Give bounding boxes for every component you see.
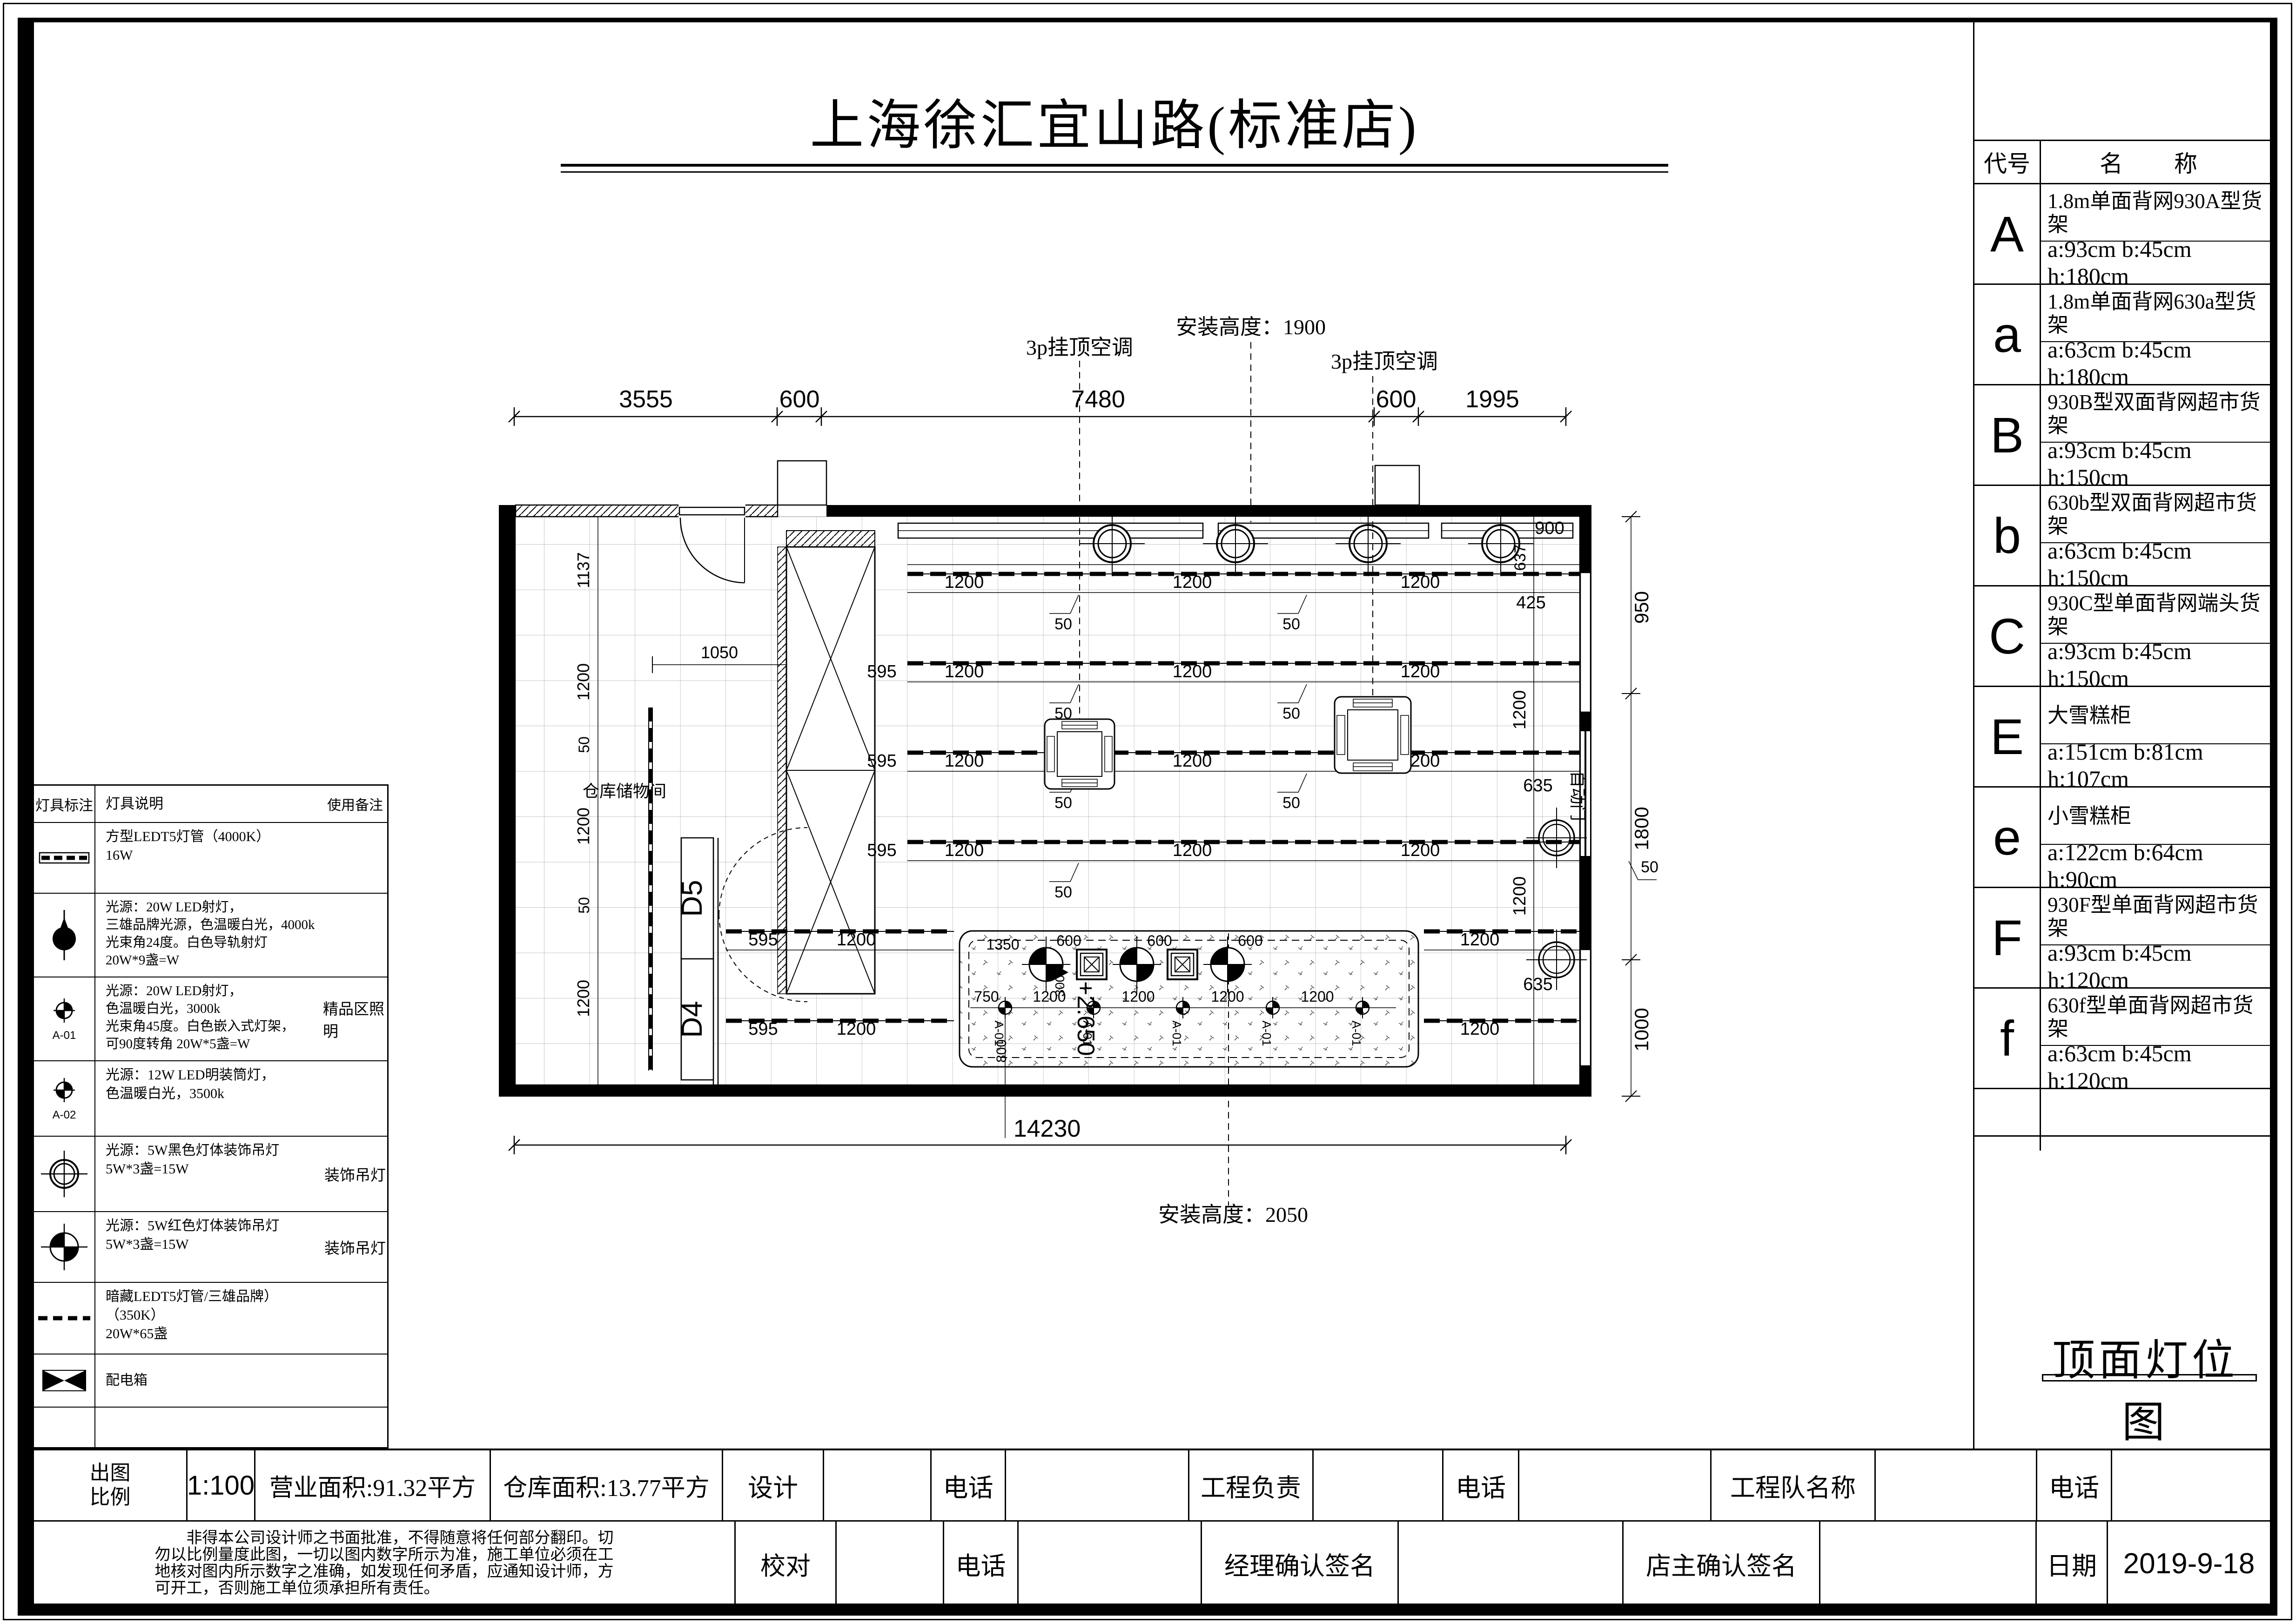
- border-top: [18, 18, 2277, 22]
- border-left: [18, 18, 34, 1616]
- legend-header: 灯具标注 灯具说明 使用备注: [34, 786, 387, 823]
- ac-cassette-left: [1045, 719, 1114, 789]
- shelf-legend-table: 代号 名 称 A 1.8m单面背网930A型货架 a:93cm b:45cm h…: [1973, 140, 2270, 1137]
- row-name: 930B型双面背网超市货架: [2041, 385, 2270, 443]
- svg-text:425: 425: [1516, 593, 1545, 613]
- row-name: 930C型单面背网端头货架: [2041, 586, 2270, 644]
- row-code: A: [1974, 184, 2041, 283]
- svg-text:1200: 1200: [1173, 751, 1212, 771]
- legend-row: A-01 光源：20W LED射灯， 色温暖白光，3000k 光束角45度。白色…: [34, 977, 387, 1061]
- page-title: 上海徐汇宜山路(标准店): [561, 81, 1668, 158]
- border-right: [2270, 18, 2277, 1616]
- svg-text:1200: 1200: [1173, 662, 1212, 681]
- svg-text:635: 635: [1523, 776, 1552, 795]
- dim-top: 3555 600 7480 600 1995: [509, 386, 1571, 426]
- check-value: [837, 1522, 944, 1605]
- svg-text:50: 50: [1282, 615, 1300, 633]
- header-name: 名 称: [2041, 141, 2270, 183]
- svg-text:635: 635: [1523, 975, 1552, 994]
- row-dims: a:93cm b:45cm h:150cm: [2041, 644, 2270, 686]
- ac-label-left: 3p挂顶空调: [1026, 336, 1133, 359]
- svg-text:A-01: A-01: [1170, 1021, 1184, 1046]
- legend-header-mark: 灯具标注: [34, 786, 95, 822]
- legend-desc: 配电箱: [95, 1354, 323, 1407]
- shelf-table-header: 代号 名 称: [1974, 141, 2270, 184]
- svg-text:595: 595: [748, 1019, 778, 1039]
- row-dims: a:93cm b:45cm h:150cm: [2041, 443, 2270, 485]
- svg-text:50: 50: [1054, 615, 1072, 633]
- row-dims: a:63cm b:45cm h:150cm: [2041, 543, 2270, 585]
- pendant-red-icon: [34, 1212, 95, 1282]
- row-code: E: [1974, 687, 2041, 786]
- warehouse-area: 仓库面积:13.77平方: [491, 1450, 723, 1520]
- legend-row-empty: [34, 1408, 387, 1447]
- legend-desc: 光源：20W LED射灯， 三雄品牌光源，色温暖白光，4000k 光束角24度。…: [95, 894, 323, 977]
- svg-text:1200: 1200: [945, 573, 984, 592]
- svg-text:600: 600: [779, 386, 820, 413]
- svg-text:50: 50: [1282, 705, 1300, 722]
- concealed-tube-icon: [34, 1283, 95, 1354]
- legend-row: A-02 光源：12W LED明装筒灯， 色温暖白光，3500k: [34, 1061, 387, 1137]
- svg-text:1200: 1200: [574, 980, 593, 1017]
- svg-text:595: 595: [867, 841, 896, 860]
- svg-text:1200: 1200: [1033, 988, 1066, 1005]
- manager-sign-label: 经理确认签名: [1202, 1522, 1399, 1605]
- row-code: e: [1974, 788, 2041, 887]
- door-label-d4: D4: [676, 1001, 708, 1038]
- row-name: 930F型单面背网超市货架: [2041, 888, 2270, 945]
- design-value: [824, 1450, 932, 1520]
- row-dims: a:93cm b:45cm h:180cm: [2041, 242, 2270, 283]
- date-label: 日期: [2037, 1522, 2108, 1605]
- svg-text:1200: 1200: [1173, 573, 1212, 592]
- project-lead-label: 工程负责: [1189, 1450, 1314, 1520]
- svg-text:950: 950: [1631, 591, 1652, 624]
- row-code: f: [1974, 989, 2041, 1088]
- svg-text:1200: 1200: [1121, 988, 1155, 1005]
- svg-text:600: 600: [1147, 932, 1172, 949]
- auto-door-label: 自动门: [1568, 771, 1587, 821]
- install-height-top: 安装高度：1900: [1176, 315, 1326, 339]
- svg-text:1200: 1200: [945, 841, 984, 860]
- team-name-value: [1876, 1450, 2037, 1520]
- track-spotlight-icon: [34, 894, 95, 977]
- date-value: 2019-9-18: [2108, 1522, 2270, 1605]
- row-name: 1.8m单面背网630a型货架: [2041, 285, 2270, 342]
- install-height-bottom: 安装高度：2050: [1158, 1203, 1308, 1226]
- svg-text:1200: 1200: [1510, 690, 1530, 730]
- svg-text:1200: 1200: [1460, 930, 1500, 950]
- svg-text:750: 750: [974, 988, 999, 1005]
- team-name-label: 工程队名称: [1712, 1450, 1876, 1520]
- legend-remark: [323, 1354, 387, 1407]
- row-dims: a:63cm b:45cm h:180cm: [2041, 342, 2270, 384]
- svg-text:1200: 1200: [574, 808, 593, 845]
- symbol-tag: A-01: [53, 1029, 76, 1042]
- table-row: a 1.8m单面背网630a型货架 a:63cm b:45cm h:180cm: [1974, 285, 2270, 385]
- header-code: 代号: [1974, 141, 2041, 183]
- row-name: 小雪糕柜: [2041, 788, 2270, 845]
- svg-text:1200: 1200: [945, 662, 984, 681]
- svg-text:600: 600: [1376, 386, 1417, 413]
- level-label: +2.650: [1072, 981, 1099, 1056]
- title-block: 出图 比例 1:100 营业面积:91.32平方 仓库面积:13.77平方 设计…: [34, 1449, 2270, 1604]
- svg-text:1137: 1137: [574, 552, 593, 588]
- svg-text:1200: 1200: [945, 751, 984, 771]
- legend-remark: [323, 1061, 387, 1136]
- legend-row: 光源：5W黑色灯体装饰吊灯 5W*3盏=15W 装饰吊灯: [34, 1137, 387, 1212]
- row-name: 1.8m单面背网930A型货架: [2041, 184, 2270, 242]
- legend-remark: [323, 1283, 387, 1354]
- title-block-row-2: 非得本公司设计师之书面批准，不得随意将任何部分翻印。切 勿以比例量度此图，一切以…: [34, 1522, 2270, 1605]
- svg-text:1800: 1800: [1631, 807, 1652, 850]
- row-name: 大雪糕柜: [2041, 687, 2270, 744]
- recessed-square-fixture: [1077, 950, 1107, 979]
- svg-text:14230: 14230: [1014, 1115, 1081, 1142]
- legend-row: 配电箱: [34, 1354, 387, 1408]
- svg-text:A-01: A-01: [1260, 1021, 1274, 1046]
- table-row: C 930C型单面背网端头货架 a:93cm b:45cm h:150cm: [1974, 586, 2270, 687]
- legend-remark: 装饰吊灯: [323, 1137, 387, 1211]
- svg-text:595: 595: [867, 751, 896, 771]
- svg-text:7480: 7480: [1071, 386, 1125, 413]
- phone-label: 电话: [944, 1522, 1019, 1605]
- svg-text:600: 600: [1056, 932, 1081, 949]
- legend-row: 光源：5W红色灯体装饰吊灯 5W*3盏=15W 装饰吊灯: [34, 1212, 387, 1283]
- svg-text:1200: 1200: [1510, 876, 1530, 916]
- row-code: a: [1974, 285, 2041, 384]
- title-underline-2: [561, 171, 1668, 173]
- svg-text:50: 50: [576, 897, 592, 914]
- svg-text:1200: 1200: [574, 663, 593, 701]
- table-row: E 大雪糕柜 a:151cm b:81cm h:107cm: [1974, 687, 2270, 788]
- row-dims: a:151cm b:81cm h:107cm: [2041, 744, 2270, 786]
- svg-text:1350: 1350: [986, 936, 1019, 953]
- svg-text:1200: 1200: [1401, 573, 1440, 592]
- table-row: F 930F型单面背网超市货架 a:93cm b:45cm h:120cm: [1974, 888, 2270, 989]
- distribution-box-icon: [34, 1354, 95, 1407]
- svg-text:1200: 1200: [1401, 662, 1440, 681]
- door-label-d5: D5: [676, 880, 708, 916]
- legend-row: 暗藏LEDT5灯管/三雄品牌）（350K） 20W*65盏: [34, 1283, 387, 1354]
- drawing-name: 顶面灯位图: [2034, 1326, 2257, 1449]
- phone-value: [2112, 1450, 2270, 1520]
- dim-bottom: 14230 安装高度：2050: [509, 1115, 1571, 1226]
- storage-label: 仓库储物间: [583, 782, 666, 801]
- svg-text:1000: 1000: [1631, 1008, 1652, 1051]
- project-lead-value: [1314, 1450, 1443, 1520]
- row-code: B: [1974, 385, 2041, 485]
- svg-text:1200: 1200: [1211, 988, 1244, 1005]
- phone-label: 电话: [2037, 1450, 2112, 1520]
- svg-text:1200: 1200: [837, 930, 876, 950]
- legend-header-remark: 使用备注: [323, 786, 387, 822]
- phone-label: 电话: [1443, 1450, 1519, 1520]
- legend-remark: [323, 894, 387, 977]
- row-name: 630b型双面背网超市货架: [2041, 486, 2270, 543]
- row-code: b: [1974, 486, 2041, 585]
- svg-text:1050: 1050: [701, 643, 738, 662]
- row-dims: a:93cm b:45cm h:120cm: [2041, 945, 2270, 987]
- ac-label-right: 3p挂顶空调: [1331, 350, 1438, 373]
- svg-text:900: 900: [1535, 519, 1564, 538]
- scale-label: 出图 比例: [34, 1450, 188, 1520]
- dim-right-exterior: 950 1800 1000: [1622, 511, 1652, 1102]
- svg-text:1200: 1200: [837, 1019, 876, 1039]
- table-row: f 630f型单面背网超市货架 a:63cm b:45cm h:120cm: [1974, 989, 2270, 1089]
- svg-text:50: 50: [576, 736, 592, 753]
- row-code: C: [1974, 586, 2041, 686]
- svg-text:50: 50: [1282, 794, 1300, 812]
- phone-label: 电话: [932, 1450, 1006, 1520]
- led-tube-surface-icon: [34, 823, 95, 893]
- legend-desc: 光源：12W LED明装筒灯， 色温暖白光，3500k: [95, 1061, 323, 1136]
- legend-desc: 光源：5W黑色灯体装饰吊灯 5W*3盏=15W: [95, 1137, 323, 1211]
- table-row: A 1.8m单面背网930A型货架 a:93cm b:45cm h:180cm: [1974, 184, 2270, 285]
- svg-text:595: 595: [748, 930, 778, 950]
- lighting-legend-table: 灯具标注 灯具说明 使用备注 方型LEDT5灯管（4000K） 16W 光源：2…: [34, 784, 389, 1449]
- title-underline: [561, 164, 1668, 167]
- legend-desc: 光源：20W LED射灯， 色温暖白光，3000k 光束角45度。白色嵌入式灯架…: [95, 977, 323, 1060]
- row-code: F: [1974, 888, 2041, 987]
- svg-text:637: 637: [1511, 545, 1529, 571]
- legend-desc: 光源：5W红色灯体装饰吊灯 5W*3盏=15W: [95, 1212, 323, 1282]
- surface-downlight-icon: A-02: [34, 1061, 95, 1136]
- manager-sign-value: [1399, 1522, 1624, 1605]
- svg-text:600: 600: [1238, 932, 1262, 949]
- table-row: b 630b型双面背网超市货架 a:63cm b:45cm h:150cm: [1974, 486, 2270, 586]
- ac-cassette-right: [1335, 697, 1411, 773]
- floor-plan: 仓库储物间 D5 D4: [489, 298, 1699, 1238]
- legend-remark: [323, 823, 387, 893]
- owner-sign-label: 店主确认签名: [1624, 1522, 1820, 1605]
- svg-text:50: 50: [1054, 794, 1072, 812]
- symbol-tag: A-02: [53, 1109, 76, 1122]
- svg-text:1200: 1200: [1173, 841, 1212, 860]
- svg-text:1200: 1200: [1401, 841, 1440, 860]
- svg-text:1200: 1200: [1460, 1019, 1500, 1039]
- phone-value: [1019, 1522, 1202, 1605]
- drawing-name-underline: [2042, 1374, 2257, 1381]
- table-row: e 小雪糕柜 a:122cm b:64cm h:90cm: [1974, 788, 2270, 888]
- owner-sign-value: [1820, 1522, 2037, 1605]
- svg-text:1995: 1995: [1465, 386, 1519, 413]
- legend-row: 方型LEDT5灯管（4000K） 16W: [34, 823, 387, 894]
- row-dims: a:122cm b:64cm h:90cm: [2041, 845, 2270, 887]
- svg-text:1200: 1200: [1301, 988, 1334, 1005]
- title-block-row-1: 出图 比例 1:100 营业面积:91.32平方 仓库面积:13.77平方 设计…: [34, 1450, 2270, 1522]
- business-area: 营业面积:91.32平方: [255, 1450, 491, 1520]
- phone-value: [1519, 1450, 1712, 1520]
- table-row-empty: [1974, 1089, 2270, 1151]
- legend-remark: 装饰吊灯: [323, 1212, 387, 1282]
- check-label: 校对: [736, 1522, 837, 1605]
- svg-text:595: 595: [867, 662, 896, 681]
- top-annotations: 3p挂顶空调 安装高度：1900 3p挂顶空调: [1026, 315, 1438, 373]
- recessed-square-fixture: [1168, 950, 1197, 979]
- recessed-spotlight-icon: A-01: [34, 977, 95, 1060]
- legend-header-desc: 灯具说明: [95, 786, 323, 822]
- disclaimer-text: 非得本公司设计师之书面批准，不得随意将任何部分翻印。切 勿以比例量度此图，一切以…: [34, 1522, 736, 1605]
- table-row: B 930B型双面背网超市货架 a:93cm b:45cm h:150cm: [1974, 385, 2270, 486]
- legend-row: 光源：20W LED射灯， 三雄品牌光源，色温暖白光，4000k 光束角24度。…: [34, 894, 387, 977]
- row-dims: a:63cm b:45cm h:120cm: [2041, 1046, 2270, 1088]
- row-name: 630f型单面背网超市货架: [2041, 989, 2270, 1046]
- svg-text:3555: 3555: [619, 386, 673, 413]
- svg-text:800: 800: [994, 1039, 1009, 1063]
- svg-text:50: 50: [1641, 858, 1658, 876]
- svg-text:A-01: A-01: [1349, 1021, 1363, 1046]
- drawing-sheet: 上海徐汇宜山路(标准店) 代号 名 称 A 1.8m单面背网930A型货架 a:…: [0, 0, 2296, 1624]
- design-label: 设计: [723, 1450, 824, 1520]
- phone-value: [1006, 1450, 1189, 1520]
- svg-text:50: 50: [1054, 883, 1072, 901]
- legend-desc: 暗藏LEDT5灯管/三雄品牌）（350K） 20W*65盏: [95, 1283, 323, 1354]
- legend-remark: 精品区照明: [323, 977, 387, 1060]
- legend-desc: 方型LEDT5灯管（4000K） 16W: [95, 823, 323, 893]
- scale-value: 1:100: [188, 1450, 255, 1520]
- pendant-black-icon: [34, 1137, 95, 1211]
